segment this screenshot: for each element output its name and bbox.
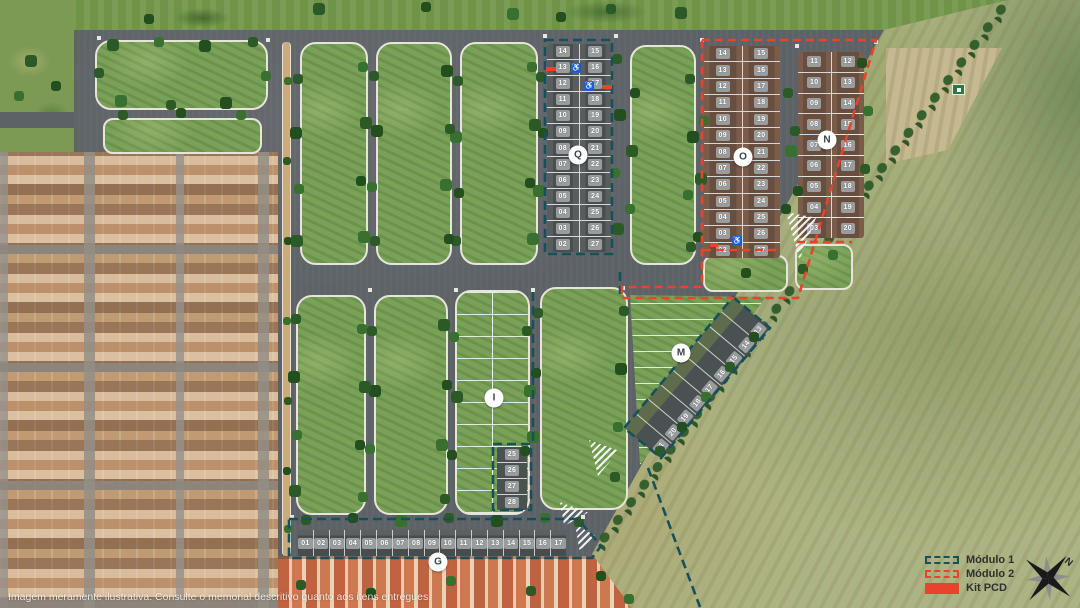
compass-rose-icon: N	[1018, 548, 1078, 608]
disclaimer-text: Imagem meramente ilustrativa. Consulte o…	[8, 591, 431, 603]
legend-row: Módulo 1	[925, 554, 1014, 566]
pcd-wheelchair-icon: ♿	[571, 63, 581, 73]
kit-pcd-swatch-icon	[925, 583, 959, 594]
module-1-swatch-icon	[925, 556, 959, 564]
block-o-badge: O	[734, 148, 753, 167]
module-1-boundary	[289, 40, 770, 607]
legend-row: Kit PCD	[925, 582, 1014, 594]
pcd-wheelchair-icon: ♿	[732, 236, 742, 246]
module-2-swatch-icon	[925, 570, 959, 578]
compass-north-label: N	[1062, 556, 1075, 569]
legend-row: Módulo 2	[925, 568, 1014, 580]
module-2-boundary	[622, 40, 876, 298]
legend-label: Módulo 2	[966, 568, 1014, 580]
module-boundaries	[0, 0, 1080, 608]
kit-pcd-mark	[602, 85, 612, 89]
legend-label: Kit PCD	[966, 582, 1007, 594]
block-i-badge: I	[485, 389, 504, 408]
legend: Módulo 1 Módulo 2 Kit PCD	[925, 552, 1014, 596]
masterplan-map: 14 15 13 16 12 17 11 18 10 19	[0, 0, 1080, 608]
block-n-badge: N	[818, 131, 837, 150]
pcd-wheelchair-icon: ♿	[584, 81, 594, 91]
kit-pcd-mark	[710, 243, 718, 247]
block-g-badge: G	[429, 553, 448, 572]
block-m-badge: M	[672, 344, 691, 363]
legend-label: Módulo 1	[966, 554, 1014, 566]
kit-pcd-mark	[546, 67, 556, 71]
block-q-badge: Q	[569, 146, 588, 165]
